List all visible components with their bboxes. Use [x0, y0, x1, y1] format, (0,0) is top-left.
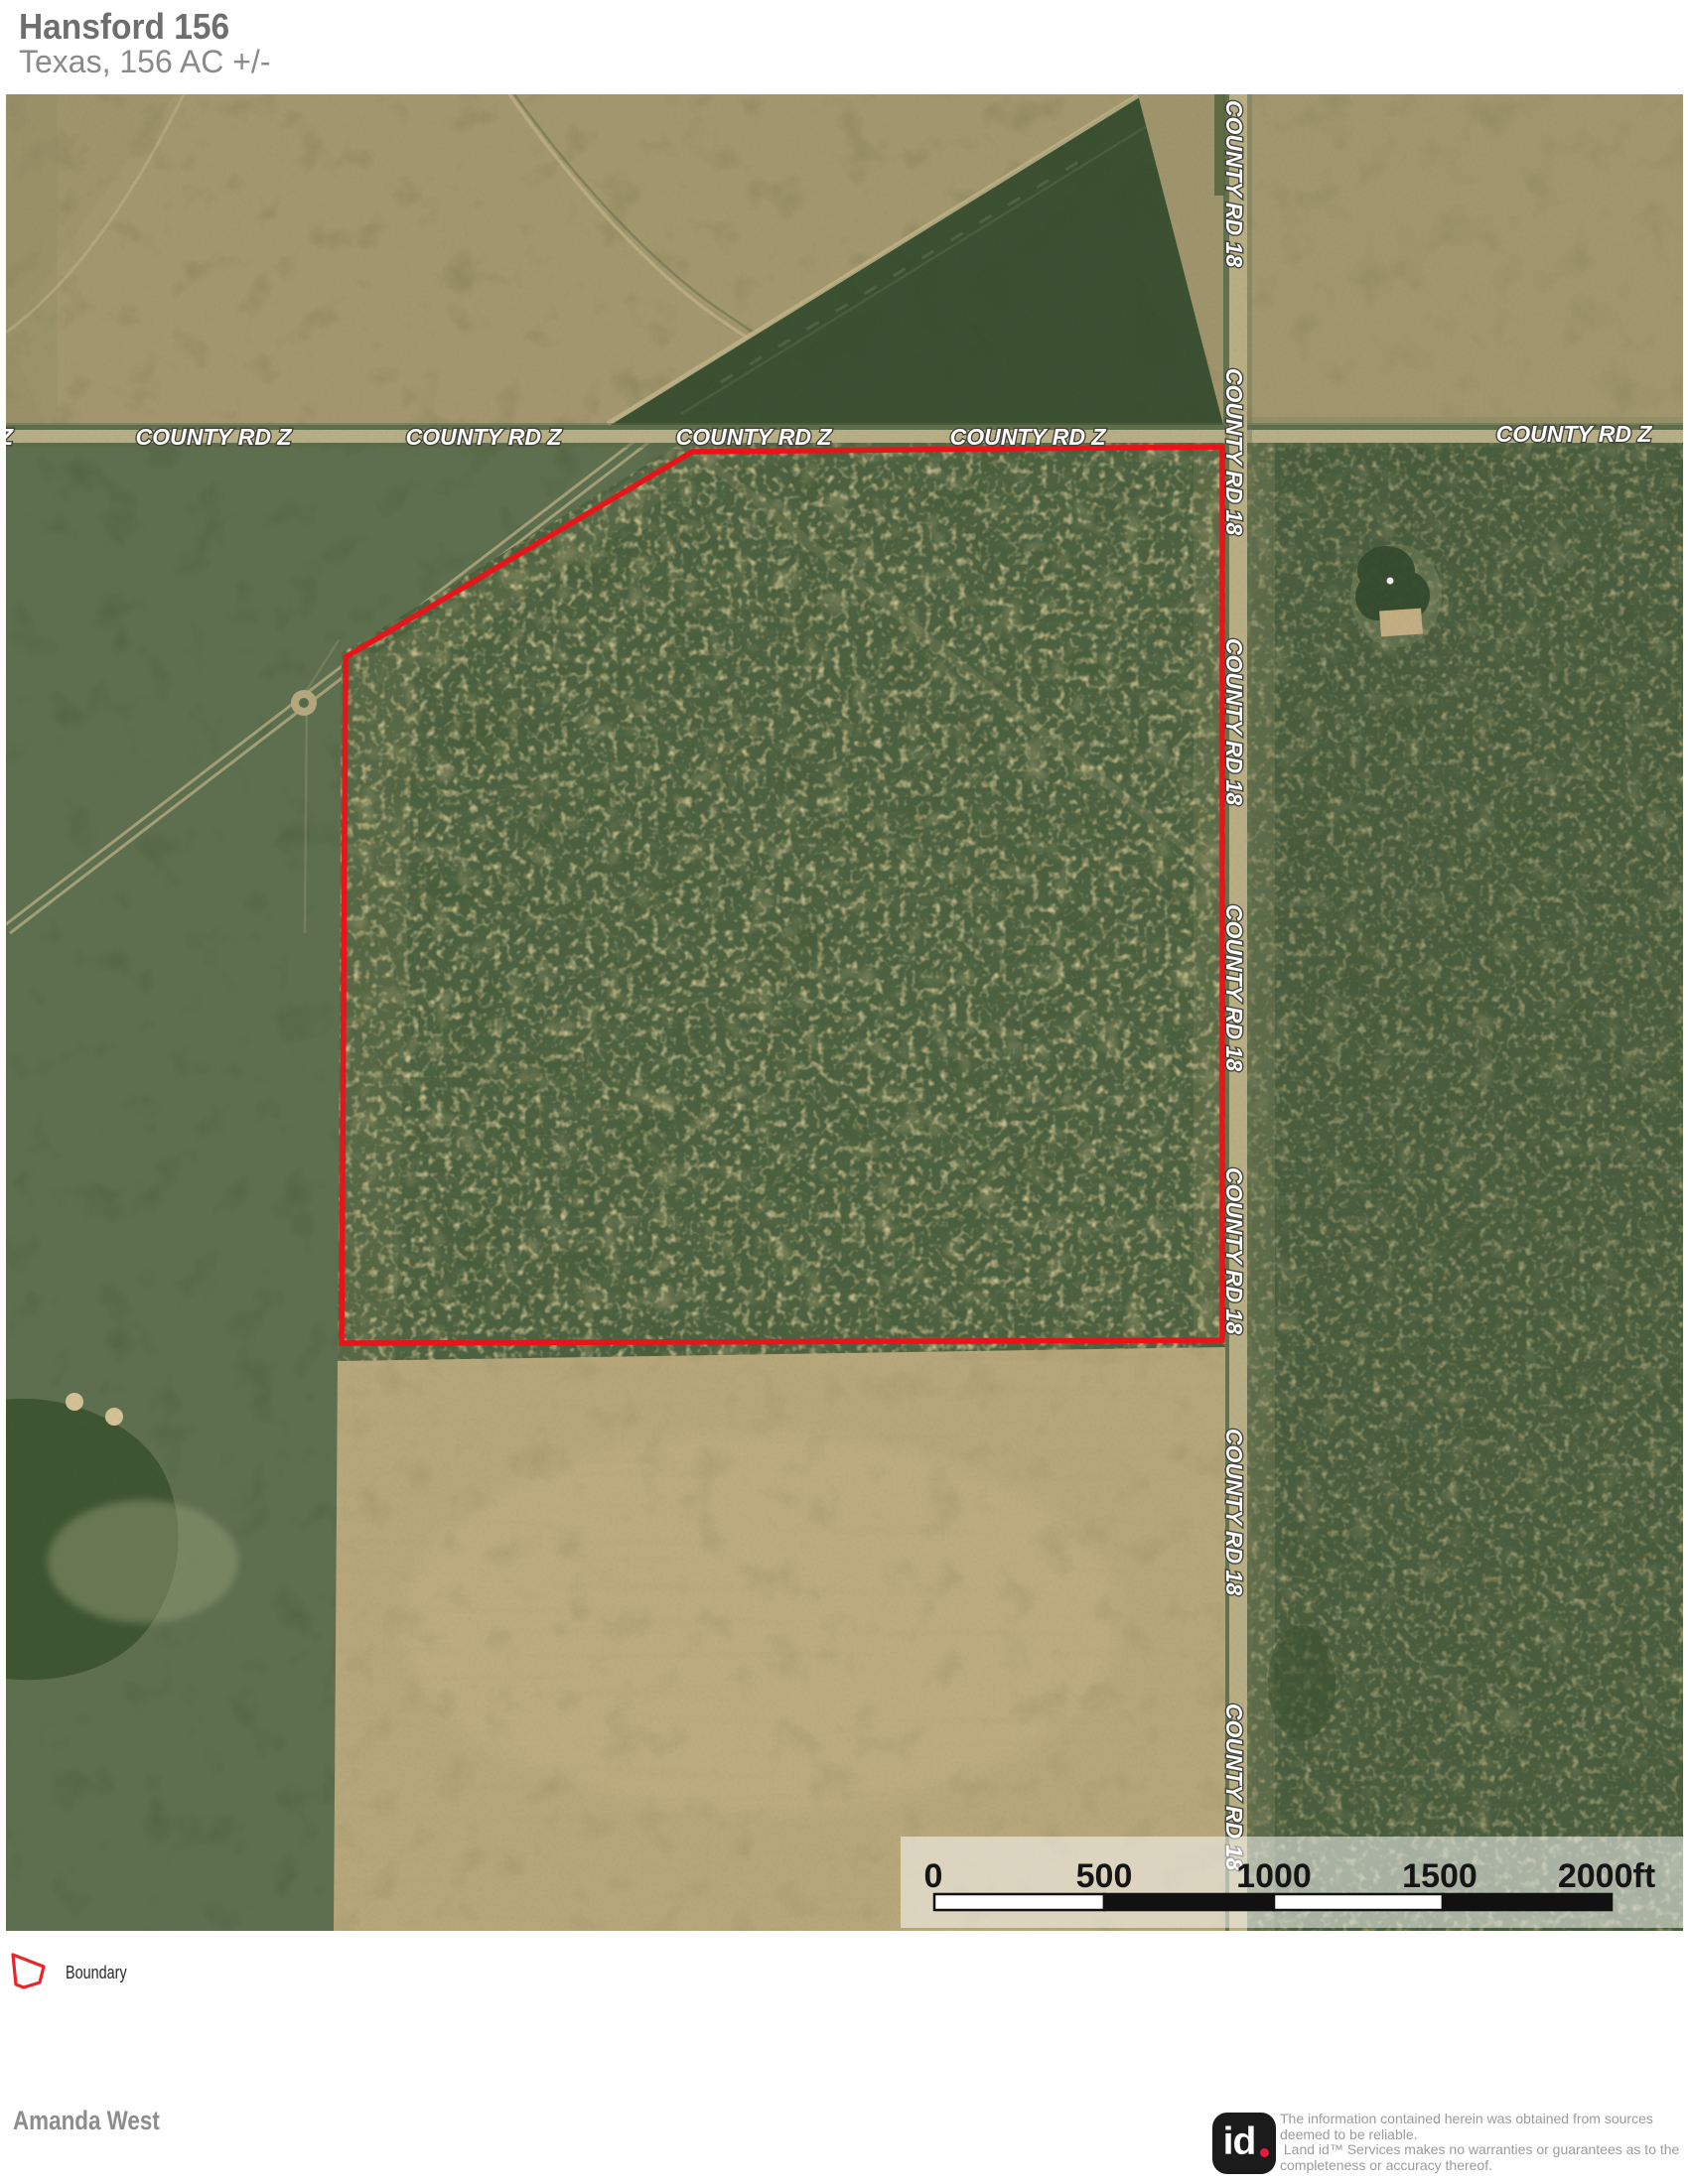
svg-text:COUNTY RD 18: COUNTY RD 18 — [1221, 1167, 1247, 1334]
svg-text:1500: 1500 — [1402, 1857, 1477, 1895]
svg-text:COUNTY RD Z: COUNTY RD Z — [1496, 421, 1653, 447]
svg-text:COUNTY RD 18: COUNTY RD 18 — [1221, 100, 1247, 267]
svg-text:COUNTY RD Z: COUNTY RD Z — [676, 424, 833, 450]
svg-text:0: 0 — [924, 1857, 943, 1895]
svg-text:COUNTY RD 18: COUNTY RD 18 — [1221, 638, 1247, 805]
svg-text:COUNTY RD Z: COUNTY RD Z — [950, 424, 1107, 450]
svg-text:Z: Z — [6, 424, 14, 450]
svg-text:COUNTY RD Z: COUNTY RD Z — [406, 424, 563, 450]
svg-text:COUNTY RD 18: COUNTY RD 18 — [1221, 1429, 1247, 1595]
svg-text:1000: 1000 — [1236, 1857, 1312, 1895]
svg-text:COUNTY RD Z: COUNTY RD Z — [136, 424, 293, 450]
svg-text:COUNTY RD 18: COUNTY RD 18 — [1221, 368, 1247, 535]
svg-text:2000ft: 2000ft — [1558, 1857, 1655, 1895]
svg-text:500: 500 — [1076, 1857, 1133, 1895]
svg-text:COUNTY RD 18: COUNTY RD 18 — [1221, 904, 1247, 1071]
